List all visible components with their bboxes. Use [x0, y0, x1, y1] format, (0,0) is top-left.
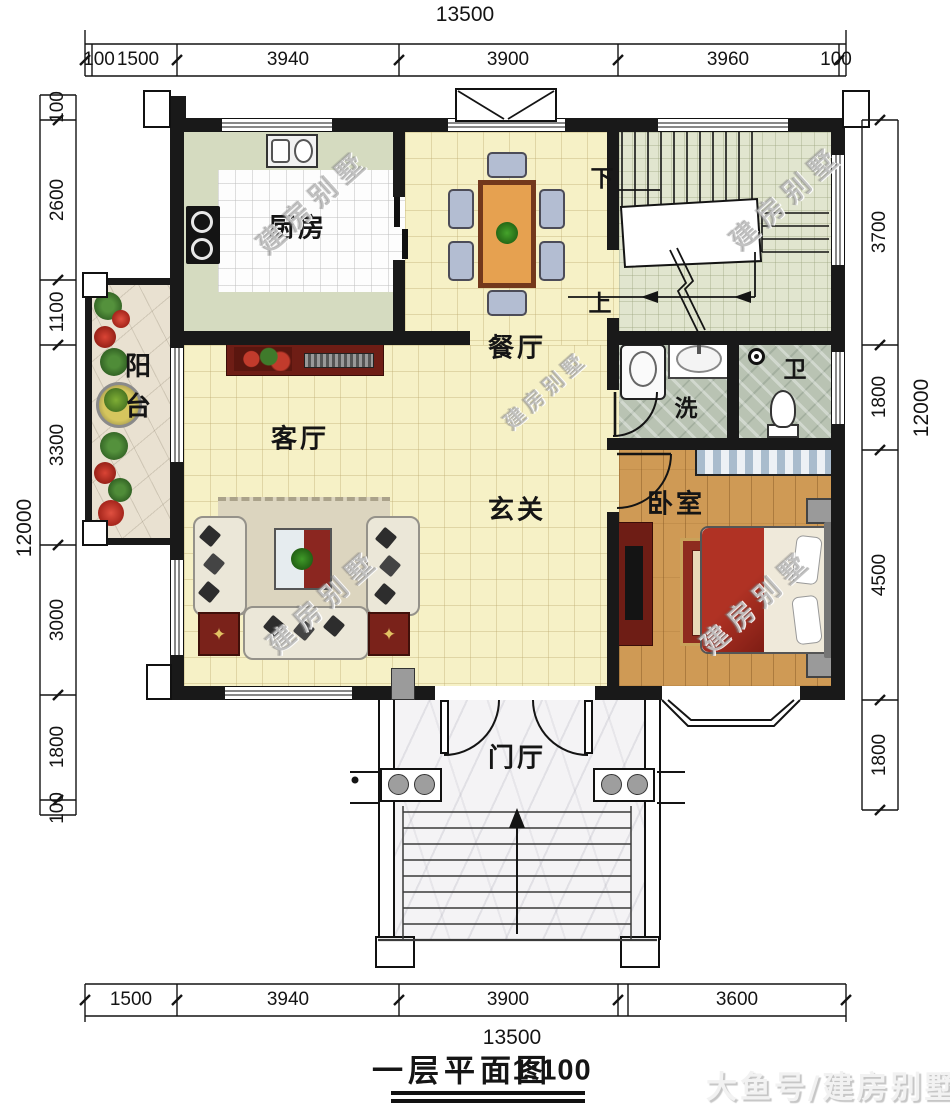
wall-kitchen-bottom	[170, 331, 407, 345]
dim-top-5: 100	[820, 49, 852, 71]
wall-kitchen-dining-upper	[393, 118, 405, 197]
dim-top-0: 100	[83, 49, 115, 71]
flower-icon	[94, 326, 116, 348]
room-label-bedroom: 卧室	[647, 484, 705, 521]
balcony-post-top	[82, 272, 108, 298]
step-block-left	[375, 936, 415, 968]
dim-left-0: 100	[47, 91, 69, 123]
room-label-foyer: 门厅	[488, 738, 546, 775]
dim-right-total: 12000	[910, 379, 934, 437]
porch-corner-column	[391, 668, 415, 700]
sink-bowl-left	[271, 139, 290, 163]
dim-left-total: 12000	[13, 499, 37, 557]
sink-bowl-right	[294, 139, 313, 163]
dim-bottom-2: 3900	[487, 989, 529, 1011]
dim-top-1: 1500	[117, 49, 159, 71]
flower-icon	[112, 310, 130, 328]
wall-hall-wash	[607, 345, 619, 390]
dim-left-5: 1800	[47, 726, 69, 768]
dim-top-4: 3960	[707, 49, 749, 71]
wall-dining-stub	[407, 331, 470, 345]
kitchen-window	[222, 118, 332, 132]
floor-plan-canvas: ✦ ✦	[0, 0, 950, 1114]
entry-canopy	[455, 88, 557, 122]
wall-bedroom-top	[607, 438, 845, 450]
balcony-rail-left	[85, 278, 92, 545]
chimney-stub	[170, 96, 186, 118]
room-label-dining: 餐厅	[488, 328, 546, 365]
foyer-floor	[391, 700, 644, 940]
living-left-window	[170, 560, 184, 655]
pilaster-top-left	[143, 90, 171, 128]
step-block-right	[620, 936, 660, 968]
dining-chair	[448, 241, 474, 281]
kitchen-sliding-door	[402, 229, 408, 259]
room-label-toilet: 卫	[784, 350, 807, 384]
plant-icon	[100, 432, 128, 460]
dim-bottom-1: 3940	[267, 989, 309, 1011]
pilaster-bottom-left	[146, 664, 172, 700]
french-door-leaf	[440, 700, 449, 754]
end-table: ✦	[368, 612, 410, 656]
tv-stand-flowers	[234, 347, 292, 371]
dim-right-1: 1800	[869, 376, 891, 418]
dim-top-2: 3940	[267, 49, 309, 71]
dim-left-2: 1100	[47, 292, 69, 333]
stove-burner	[191, 211, 213, 233]
table-plant-icon	[496, 222, 518, 244]
wall-wash-bath-divider	[727, 345, 739, 445]
plant-icon	[108, 478, 132, 502]
toilet-window	[831, 352, 845, 424]
room-label-wash: 洗	[675, 389, 698, 423]
dim-bottom-3: 3600	[716, 989, 758, 1011]
living-bottom-window	[225, 686, 352, 700]
porch-column	[388, 774, 409, 795]
entry-door-opening	[435, 686, 595, 700]
dim-left-3: 3300	[47, 424, 69, 466]
dim-left-1: 2600	[47, 179, 69, 221]
dim-bottom-0: 1500	[110, 989, 152, 1011]
kitchen-sliding-door	[394, 197, 400, 227]
stairs-up-label: 上	[589, 284, 612, 318]
title-underline	[391, 1091, 585, 1095]
dim-right-3: 1800	[869, 734, 891, 776]
kitchen-counter-bottom	[218, 292, 393, 333]
dim-left-4: 3000	[47, 599, 69, 641]
dim-top-3: 3900	[487, 49, 529, 71]
balcony-post-bottom	[82, 520, 108, 546]
dining-chair	[539, 189, 565, 229]
tv-speaker	[304, 353, 374, 368]
watermark-corner: 大鱼号/建房别墅	[706, 1062, 950, 1107]
balcony-door-window	[170, 348, 184, 462]
title-underline	[391, 1099, 585, 1103]
wall-hall-bedroom	[607, 512, 619, 686]
french-door-leaf	[584, 700, 593, 754]
porch-column	[601, 774, 622, 795]
porch-column	[414, 774, 435, 795]
dim-left-6: 100	[47, 792, 69, 824]
stairs-down-label: 下	[591, 159, 614, 193]
dining-chair	[487, 290, 527, 316]
end-table: ✦	[198, 612, 240, 656]
porch-wall-left	[378, 700, 395, 940]
dining-chair	[448, 189, 474, 229]
dim-right-0: 3700	[869, 211, 891, 253]
room-label-balcony: 阳台	[118, 352, 155, 432]
coffee-table-plant-icon	[291, 548, 313, 570]
room-label-hall: 玄关	[488, 490, 546, 527]
porch-wall-right	[644, 700, 661, 940]
plan-scale: 1:100	[512, 1055, 591, 1088]
dining-chair	[487, 152, 527, 178]
pilaster-top-right	[842, 90, 870, 128]
bay-window-opening	[662, 686, 800, 700]
dining-chair	[539, 241, 565, 281]
wall-wash-top	[607, 331, 845, 345]
shower-head-dot	[754, 354, 759, 359]
wardrobe	[695, 448, 837, 476]
porch-column	[627, 774, 648, 795]
stove-burner	[191, 238, 213, 260]
washing-machine-door	[629, 351, 657, 387]
stairs-window	[658, 118, 788, 132]
dim-right-2: 4500	[869, 554, 891, 596]
dim-top-total: 13500	[436, 3, 494, 27]
bedroom-tv	[625, 546, 643, 620]
toilet-bowl	[770, 390, 796, 428]
room-label-living: 客厅	[271, 419, 329, 456]
